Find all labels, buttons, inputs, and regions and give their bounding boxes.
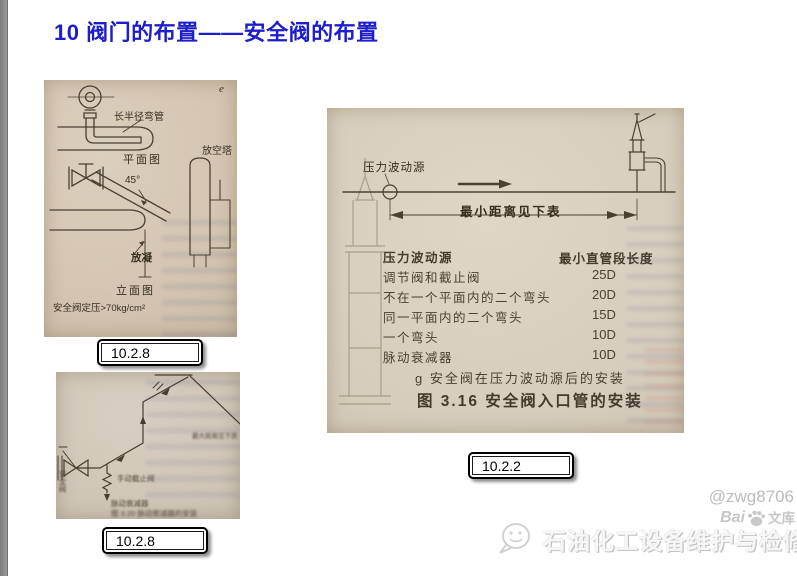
pulsation-line-diagram: [56, 372, 240, 519]
tag-label: 10.2.8: [106, 531, 204, 550]
table-row-item: 调节阀和截止阀: [383, 267, 481, 286]
slide-title: 10 阀门的布置——安全阀的布置: [54, 15, 379, 47]
table-row-value: 25D: [592, 267, 616, 282]
label-vent-tower: 放空塔: [202, 142, 232, 157]
label-long-radius-elbow: 长半径弯管: [114, 108, 164, 123]
left-edge-bar: [0, 0, 8, 576]
table-row-value: 10D: [592, 347, 616, 362]
watermark-user-id: @zwg8706: [709, 487, 794, 507]
table-row-item: 一个弯头: [383, 327, 439, 346]
slide: 10 阀门的布置——安全阀的布置: [0, 0, 797, 576]
label-max-distance-note: 最大距离见下表: [192, 430, 238, 440]
tag-label: 10.2.8: [101, 343, 199, 362]
label-elevation-view: 立面图: [116, 282, 155, 298]
figure-caption: 图 3.20 脉动衰减器的安装: [111, 508, 197, 519]
tag-box-10-2-8-top: 10.2.8: [97, 339, 203, 366]
figure-pulsation-line-scan: 安全阀 手动截止阀 脉动衰减器 最大距离见下表 图 3.20 脉动衰减器的安装: [56, 372, 240, 519]
label-set-pressure: 安全阀定压>70kg/cm²: [53, 300, 145, 314]
figure-corner-mark: e: [219, 83, 224, 95]
label-manual-stop-valve: 手动截止阀: [117, 473, 155, 484]
figure-inlet-piping-scan: 压力波动源 最小距离见下表 压力波动源 最小直管段长度 调节阀和截止阀 25D …: [327, 108, 684, 433]
label-pressure-source: 压力波动源: [363, 159, 426, 175]
chat-bubble-icon: [496, 521, 534, 557]
table-row-value: 20D: [592, 287, 616, 302]
table-row-item: 脉动衰减器: [383, 347, 453, 366]
footer-site-name: 石油化工设备维护与检修网: [543, 522, 797, 556]
caption-figure-3-16: 图 3.16 安全阀入口管的安装: [417, 389, 643, 411]
table-header-value: 最小直管段长度: [559, 248, 654, 267]
label-drain: 放凝: [131, 250, 152, 265]
label-plan-view: 平面图: [123, 151, 162, 167]
table-row-item: 同一平面内的二个弯头: [383, 307, 523, 326]
tag-box-10-2-2: 10.2.2: [468, 452, 574, 479]
tag-box-10-2-8-bottom: 10.2.8: [102, 527, 208, 554]
label-min-distance-note: 最小距离见下表: [460, 201, 562, 220]
table-row-value: 10D: [592, 327, 616, 342]
tag-label: 10.2.2: [472, 456, 570, 475]
table-row-item: 不在一个平面内的二个弯头: [383, 287, 551, 306]
label-45-degree: 45°: [125, 175, 140, 186]
footer-watermark: 石油化工设备维护与检修网: [496, 521, 797, 557]
caption-g: g 安全阀在压力波动源后的安装: [415, 368, 625, 387]
table-row-value: 15D: [592, 307, 616, 322]
label-safety-valve: 安全阀: [57, 470, 68, 493]
figure-plan-elevation-scan: e 长半径弯管 平面图 放空塔 45° 放凝 立面图 安全阀定压>70kg/cm…: [44, 80, 237, 337]
table-header-item: 压力波动源: [383, 247, 453, 266]
